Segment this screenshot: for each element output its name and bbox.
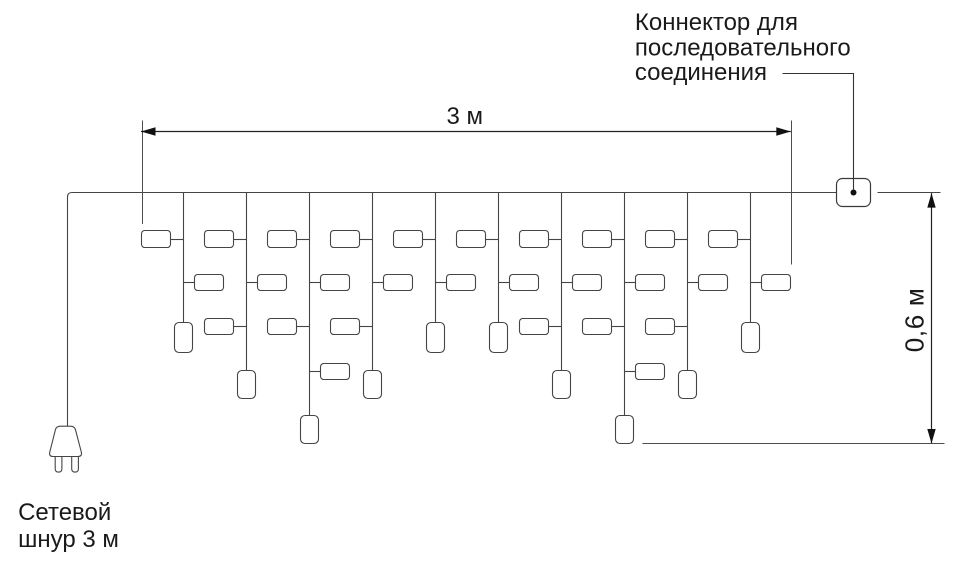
svg-text:шнур 3 м: шнур 3 м [18, 526, 119, 553]
svg-text:Сетевой: Сетевой [18, 499, 111, 526]
svg-text:соединения: соединения [635, 59, 767, 86]
svg-text:Коннектор для: Коннектор для [635, 9, 798, 36]
svg-text:3 м: 3 м [447, 103, 484, 130]
svg-text:последовательного: последовательного [635, 34, 851, 61]
svg-text:0,6 м: 0,6 м [900, 288, 930, 352]
